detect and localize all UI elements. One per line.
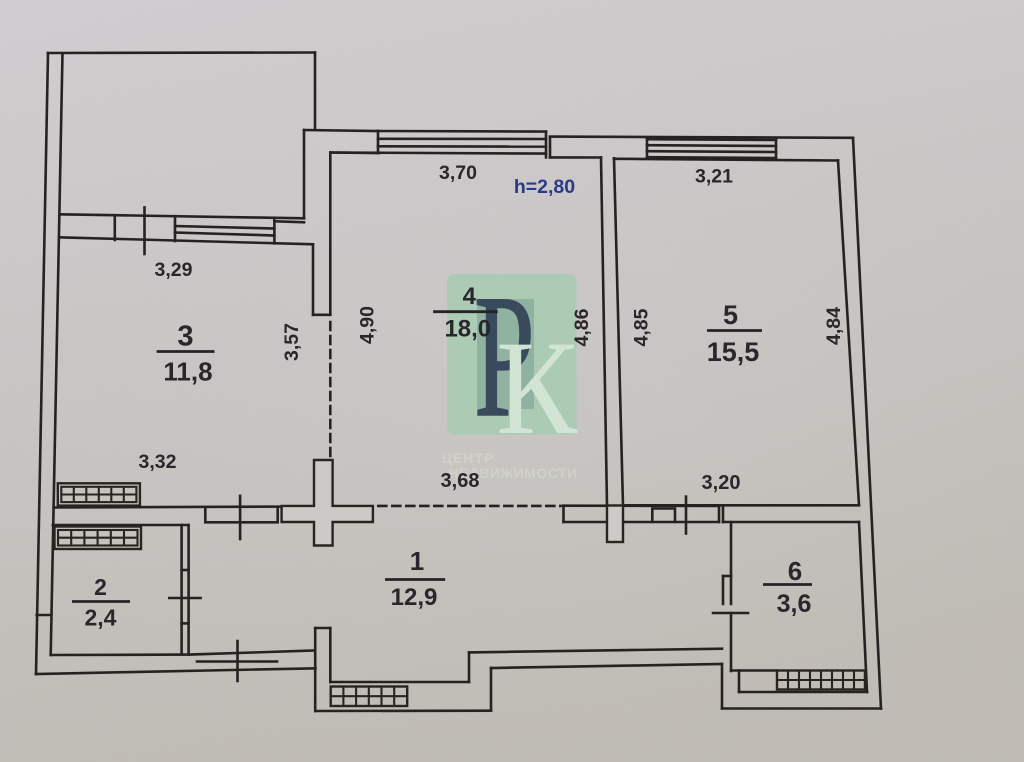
svg-text:12,9: 12,9 xyxy=(391,584,438,611)
svg-text:ЦЕНТР: ЦЕНТР xyxy=(442,450,495,466)
svg-text:1: 1 xyxy=(410,546,424,576)
svg-text:3,68: 3,68 xyxy=(441,470,480,492)
svg-text:3,29: 3,29 xyxy=(155,259,193,281)
svg-text:4,90: 4,90 xyxy=(357,306,379,344)
svg-text:3: 3 xyxy=(177,321,193,353)
svg-text:4,84: 4,84 xyxy=(823,307,845,345)
svg-text:18,0: 18,0 xyxy=(444,316,491,343)
svg-text:6: 6 xyxy=(788,556,802,586)
svg-text:2: 2 xyxy=(94,574,107,600)
svg-text:4: 4 xyxy=(463,283,477,310)
svg-text:3,70: 3,70 xyxy=(439,162,477,184)
svg-text:15,5: 15,5 xyxy=(707,337,760,367)
svg-text:3,20: 3,20 xyxy=(702,472,741,494)
svg-text:3,57: 3,57 xyxy=(281,323,303,361)
svg-text:4,85: 4,85 xyxy=(631,308,653,346)
svg-text:5: 5 xyxy=(723,300,738,330)
svg-text:4,86: 4,86 xyxy=(571,308,593,346)
svg-text:3,21: 3,21 xyxy=(695,166,733,188)
svg-text:2,4: 2,4 xyxy=(85,605,117,631)
svg-text:3,6: 3,6 xyxy=(777,590,812,618)
svg-text:3,32: 3,32 xyxy=(139,451,177,473)
svg-text:К: К xyxy=(496,313,578,462)
svg-text:11,8: 11,8 xyxy=(163,357,212,387)
svg-text:h=2,80: h=2,80 xyxy=(514,176,575,198)
